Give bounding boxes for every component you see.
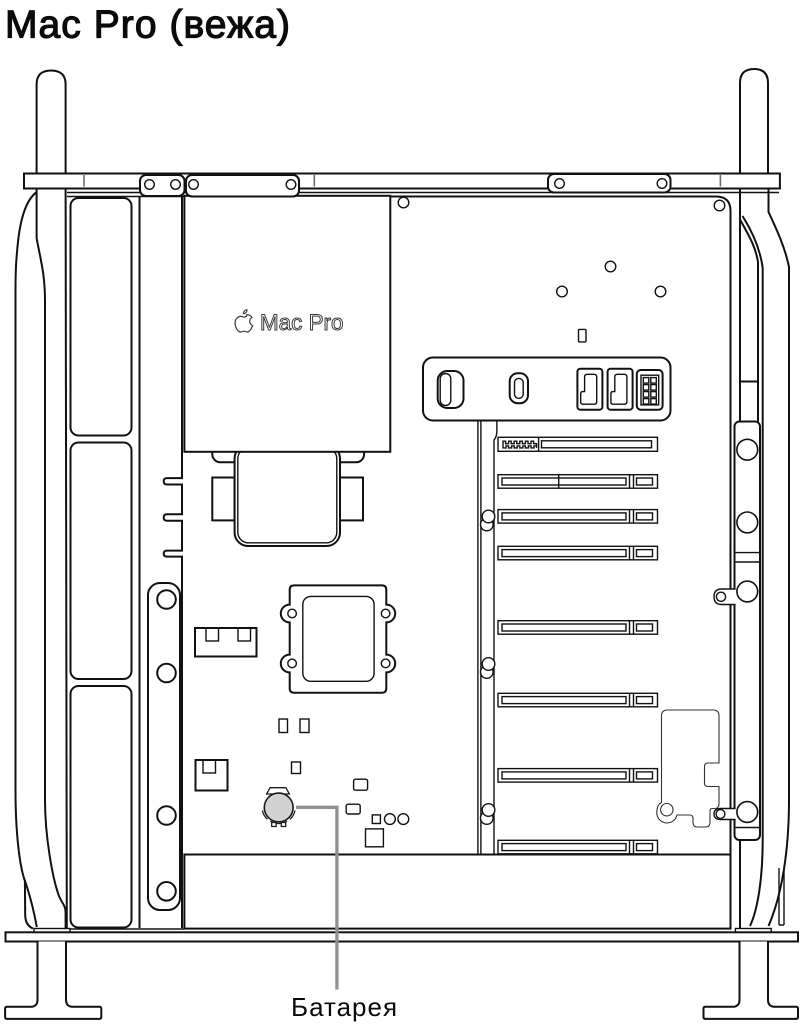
svg-text:Mac Pro (вежа): Mac Pro (вежа) xyxy=(5,4,291,47)
svg-text:Батарея: Батарея xyxy=(291,992,398,1022)
svg-text:Mac Pro: Mac Pro xyxy=(260,310,344,335)
